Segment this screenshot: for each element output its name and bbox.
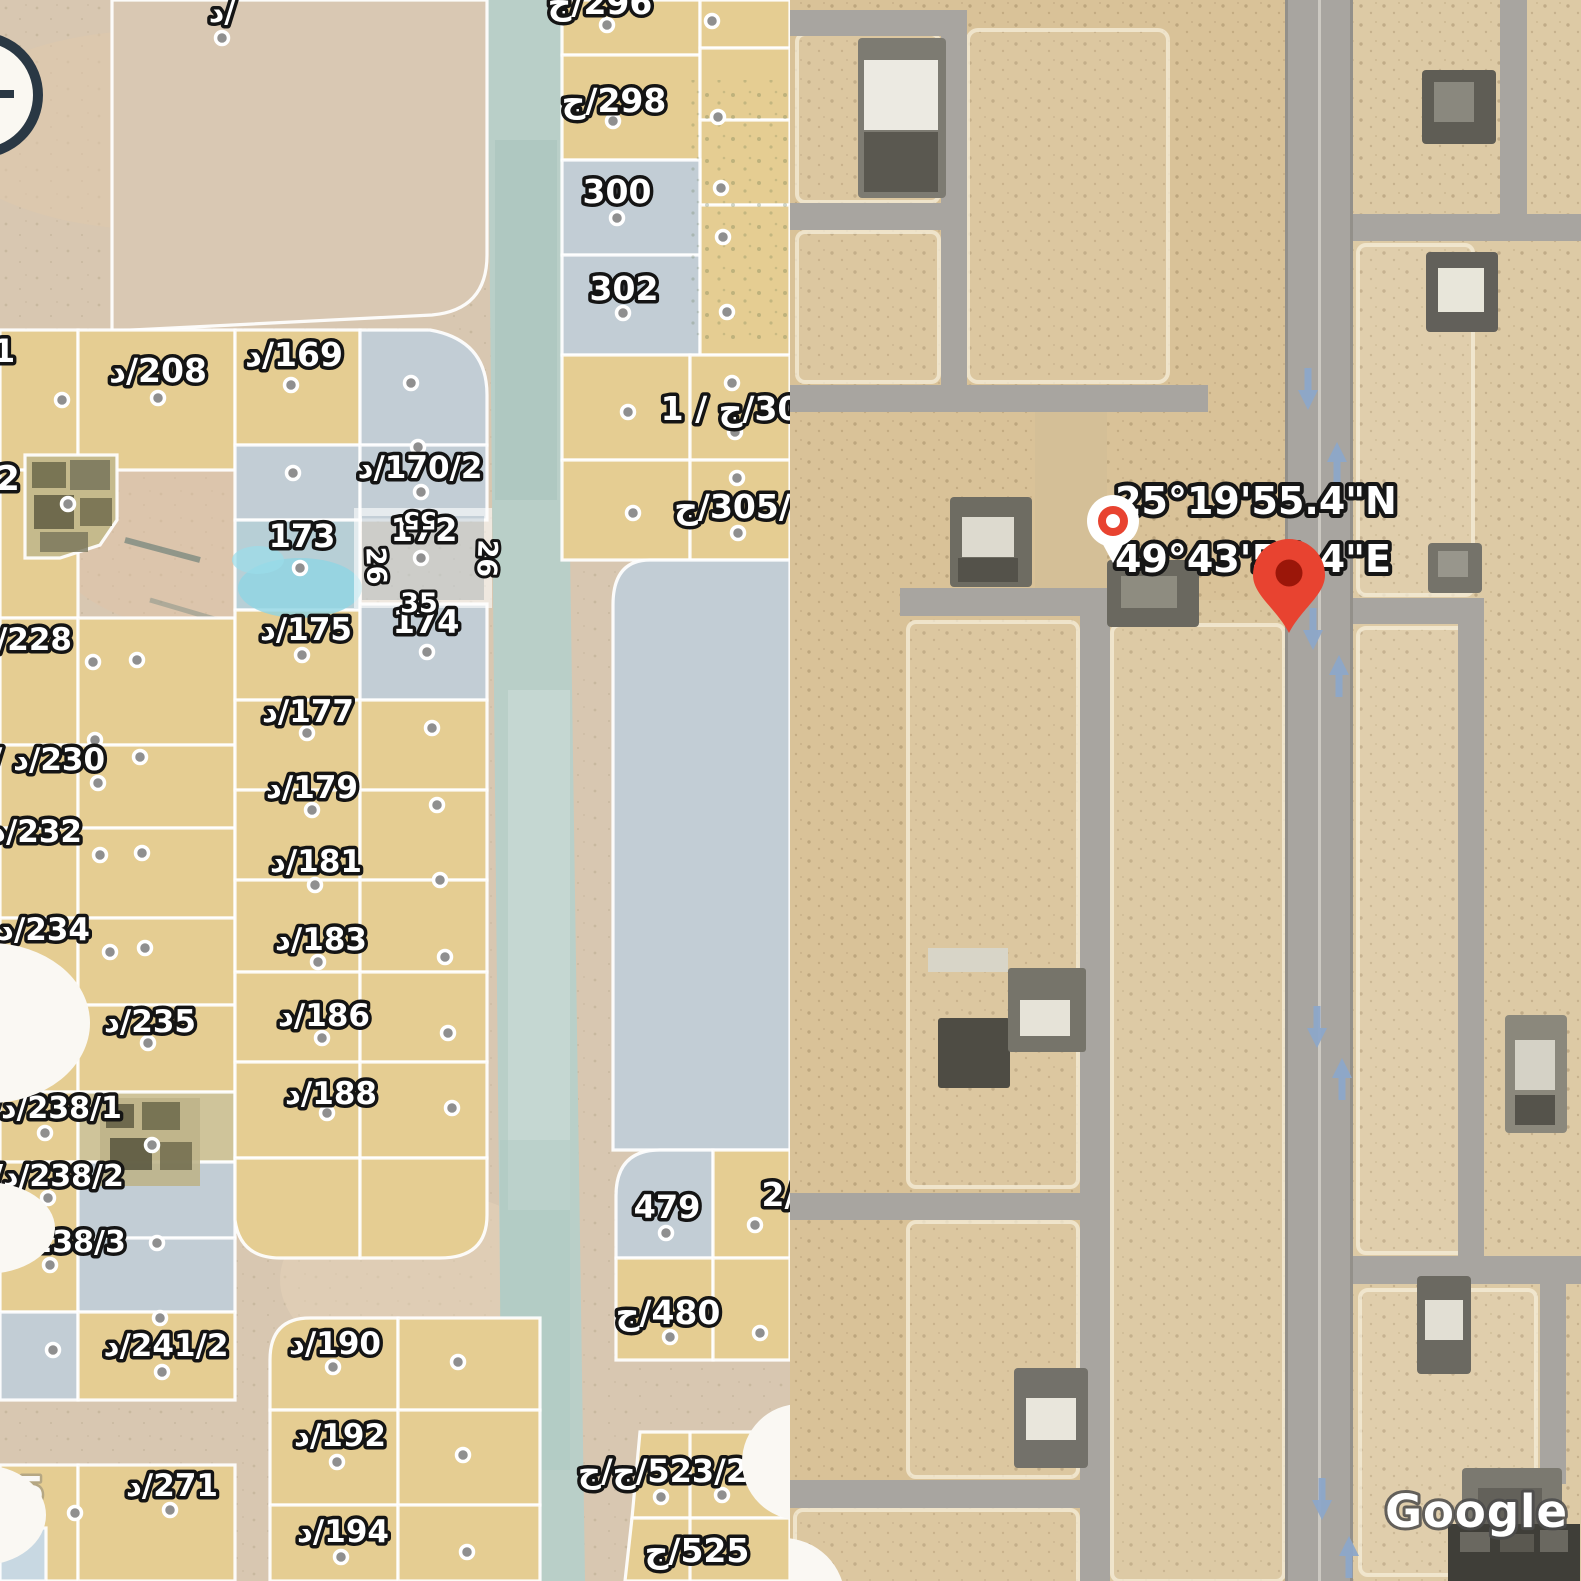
parcel-label: 2: [0, 459, 20, 499]
dimension-label: 26: [470, 539, 502, 578]
dimension-label: 26: [359, 546, 391, 585]
parcel-dot: [712, 111, 725, 124]
parcel-dot: [285, 379, 298, 392]
parcel-dot: [627, 507, 640, 520]
parcel-label: ‭د/271: [126, 1468, 218, 1504]
parcel-dot: [617, 307, 630, 320]
parcel-dot: [131, 654, 144, 667]
parcel-label: ‭د/241/2: [104, 1328, 229, 1364]
parcel-dot: [660, 1227, 673, 1240]
parcel-label: ‭ج/298: [562, 81, 667, 120]
parcel-label: ‭/ د/230: [0, 742, 105, 778]
coordinate-line1: 25°19'55.4"N: [1115, 479, 1397, 523]
parcel-label: ‭د/186: [278, 998, 370, 1034]
parcel-dot: [164, 1504, 177, 1517]
parcel-dot: [457, 1449, 470, 1462]
parcel-dot: [415, 552, 428, 565]
parcel-dot: [442, 1027, 455, 1040]
parcel-dot: [731, 472, 744, 485]
dimension-label: 55: [403, 506, 436, 534]
parcel-dot: [415, 486, 428, 499]
parcel-label: ‭د/190: [289, 1326, 381, 1362]
parcel-dot: [87, 656, 100, 669]
parcel-label: ‭د/170/2: [358, 450, 483, 486]
parcel-label: ‭د/208: [109, 351, 207, 390]
parcel-dot: [754, 1327, 767, 1340]
parcel-dot: [405, 377, 418, 390]
parcel-dot: [439, 951, 452, 964]
coordinate-line2: 49°43'54.4"E: [1115, 537, 1391, 581]
parcel-dot: [56, 394, 69, 407]
parcel-dot: [434, 874, 447, 887]
parcel-dot: [611, 212, 624, 225]
map-comparison-stage: ‭د/1‭د/208‭د/1692‭د/170/2173172‭د/175174…: [0, 0, 1581, 1581]
parcel-dot: [426, 722, 439, 735]
parcel-dot: [151, 1237, 164, 1250]
parcel-label: ‭د/: [209, 0, 235, 30]
parcel-label: ‭2/: [761, 1175, 790, 1214]
parcel-dot: [69, 1507, 82, 1520]
parcel-dot: [139, 942, 152, 955]
parcel-label: ‭د/183: [275, 922, 367, 958]
parcel-dot: [622, 406, 635, 419]
parcel-label: ‭د/177: [262, 694, 354, 730]
parcel-dot: [749, 1219, 762, 1232]
parcel-label: 300: [583, 172, 652, 211]
parcel-dot: [726, 377, 739, 390]
parcel-dot: [104, 946, 117, 959]
parcel-label: ‭د/175: [260, 612, 352, 648]
parcel-dot: [134, 751, 147, 764]
parcel-label: ‭د/235: [104, 1004, 196, 1040]
parcel-label: ‭د/179: [266, 770, 358, 806]
parcel-dot: [721, 306, 734, 319]
parcel-dot: [706, 15, 719, 28]
parcel-label: 302: [590, 269, 659, 308]
parcel-dot: [717, 231, 730, 244]
parcel-label: ‭د/234: [0, 912, 90, 948]
parcel-label: ‭د/232: [0, 814, 82, 850]
google-watermark[interactable]: Google: [1385, 1485, 1568, 1538]
parcel-dot: [335, 1551, 348, 1564]
parcel-dot: [331, 1456, 344, 1469]
parcel-dot: [716, 1489, 729, 1502]
parcel-dot: [431, 799, 444, 812]
parcel-dot: [309, 879, 322, 892]
parcel-dot: [655, 1491, 668, 1504]
parcel-label: ‭د/188: [285, 1076, 377, 1112]
parcel-label: ‭د/192: [294, 1418, 386, 1454]
parcel-dot: [327, 1361, 340, 1374]
parcel-label: ‭د/228: [0, 622, 72, 658]
parcel-dot: [44, 1259, 57, 1272]
parcel-dot: [154, 1312, 167, 1325]
parcel-dot: [664, 1331, 677, 1344]
parcel-dot: [296, 649, 309, 662]
parcel-dot: [62, 498, 75, 511]
parcel-dot: [452, 1356, 465, 1369]
parcel-label: ‭ج/296: [548, 0, 653, 22]
parcel-dot: [216, 32, 229, 45]
parcel-dot: [446, 1102, 459, 1115]
dimension-label: 35: [400, 588, 438, 619]
parcel-label: ‭ج/480: [616, 1293, 721, 1332]
parcel-dot: [461, 1546, 474, 1559]
cadastral-map-panel[interactable]: ‭د/1‭د/208‭د/1692‭د/170/2173172‭د/175174…: [0, 0, 790, 1581]
parcel-dot: [156, 1366, 169, 1379]
parcel-dot: [39, 1127, 52, 1140]
parcel-dot: [715, 182, 728, 195]
parcel-label: 173: [269, 517, 336, 555]
parcel-dot: [421, 646, 434, 659]
parcel-dot: [146, 1139, 159, 1152]
parcel-label: ‭د/181: [270, 844, 362, 880]
parcel-label: ‭د/194: [297, 1514, 389, 1550]
satellite-map-panel[interactable]: 25°19'55.4"N 49°43'54.4"E Google: [790, 0, 1581, 1581]
parcel-dot: [94, 849, 107, 862]
parcel-label: ‭ج/525: [645, 1531, 750, 1570]
parcel-dot: [732, 527, 745, 540]
parcel-label: 479: [634, 1188, 701, 1226]
parcel-dot: [287, 467, 300, 480]
parcel-label: ‭د/169: [245, 335, 343, 374]
parcel-dot: [47, 1344, 60, 1357]
parcel-dot: [152, 392, 165, 405]
parcel-label: ‭ج/305/2: [674, 487, 790, 526]
parcel-dot: [294, 562, 307, 575]
parcel-dot: [136, 847, 149, 860]
parcel-label: ‭1 / ج/303: [661, 389, 790, 428]
parcel-label: ‭ج/ج/523/2: [578, 1452, 748, 1490]
parcel-dot: [92, 777, 105, 790]
parcel-label: 1: [0, 332, 15, 370]
